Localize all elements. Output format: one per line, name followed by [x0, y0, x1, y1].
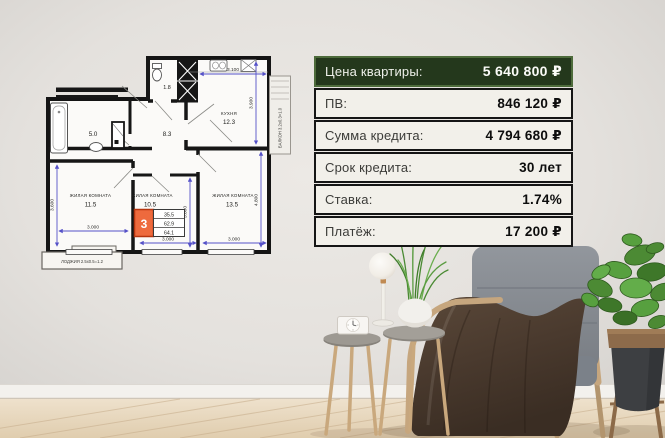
row-credit-term: Срок кредита: 30 лет: [314, 152, 573, 183]
living3-label: ЖИЛАЯ КОМНАТА: [212, 193, 253, 198]
vent-shaft-icon: [177, 60, 198, 103]
blanket: [411, 297, 586, 436]
stove-icon: [241, 60, 256, 72]
dim-living1-h: 3.600: [50, 199, 56, 211]
apartment-stamp: 3 35.5 62.9 64.1: [135, 210, 185, 237]
stamp-living-area: 35.5: [164, 213, 174, 219]
row-credit-sum: Сумма кредита: 4 794 680 ₽: [314, 120, 573, 151]
living3-area: 13.5: [226, 202, 239, 209]
row-rate: Ставка: 1.74%: [314, 184, 573, 215]
row-value: 1.74%: [522, 192, 562, 207]
loggia-label: ЛОДЖИЯ 2.5х0.5=1.2: [61, 259, 103, 264]
balcony: БАЛКОН 3.2х0.3=1.0: [270, 76, 291, 154]
entrance-wall-2: [56, 95, 118, 98]
price-header-label: Цена квартиры:: [325, 64, 423, 79]
balcony-label: БАЛКОН 3.2х0.3=1.0: [278, 107, 283, 148]
row-value: 846 120 ₽: [497, 96, 562, 112]
row-down-payment: ПВ: 846 120 ₽: [314, 88, 573, 119]
row-value: 4 794 680 ₽: [485, 128, 562, 144]
row-label: Ставка:: [325, 192, 373, 207]
kitchen-area: 12.3: [223, 119, 236, 126]
row-label: Платёж:: [325, 224, 376, 239]
row-label: Срок кредита:: [325, 160, 412, 175]
row-label: ПВ:: [325, 96, 347, 111]
stamp-area-without-balcony: 62.9: [164, 222, 174, 228]
bathroom-area: 5.0: [89, 131, 98, 138]
row-value: 30 лет: [519, 160, 562, 175]
living2-label: ЖИЛАЯ КОМНАТА: [131, 193, 172, 198]
entrance-wall: [56, 88, 128, 93]
living1-label: ЖИЛАЯ КОМНАТА: [70, 193, 111, 198]
living1-area: 11.5: [85, 202, 97, 209]
clock: [338, 317, 369, 335]
dim-kitchen-w: 3.100: [227, 67, 239, 73]
dim-living3-w: 3.000: [228, 237, 240, 243]
stamp-rooms-count: 3: [141, 217, 148, 231]
dim-kitchen-h: 3.900: [249, 97, 255, 109]
cabinet-icon: [112, 122, 124, 148]
wc-area: 1.8: [163, 85, 171, 91]
kitchen-label: КУХНЯ: [221, 111, 237, 116]
bathtub-icon: [51, 103, 68, 153]
toilet-icon: [153, 64, 162, 82]
row-monthly-payment: Платёж: 17 200 ₽: [314, 216, 573, 247]
living2-area: 10.5: [144, 202, 157, 209]
dim-living2-w: 3.000: [162, 237, 174, 243]
hall-area: 8.3: [163, 131, 172, 138]
price-header-row: Цена квартиры: 5 640 800 ₽: [314, 56, 573, 87]
windows: [66, 250, 254, 255]
floor-plan: БАЛКОН 3.2х0.3=1.0 ЛОДЖИЯ 2.5х0.5=1.2: [33, 47, 299, 276]
dim-living3-h: 4.800: [254, 194, 260, 206]
dim-living1-w: 3.000: [87, 225, 99, 231]
price-header-value: 5 640 800 ₽: [483, 63, 562, 80]
price-table: Цена квартиры: 5 640 800 ₽ ПВ: 846 120 ₽…: [314, 56, 573, 248]
sink-icon: [90, 143, 103, 152]
real-estate-ad: БАЛКОН 3.2х0.3=1.0 ЛОДЖИЯ 2.5х0.5=1.2: [0, 0, 665, 438]
row-value: 17 200 ₽: [505, 224, 562, 240]
stamp-total-area: 64.1: [164, 231, 174, 237]
row-label: Сумма кредита:: [325, 128, 424, 143]
